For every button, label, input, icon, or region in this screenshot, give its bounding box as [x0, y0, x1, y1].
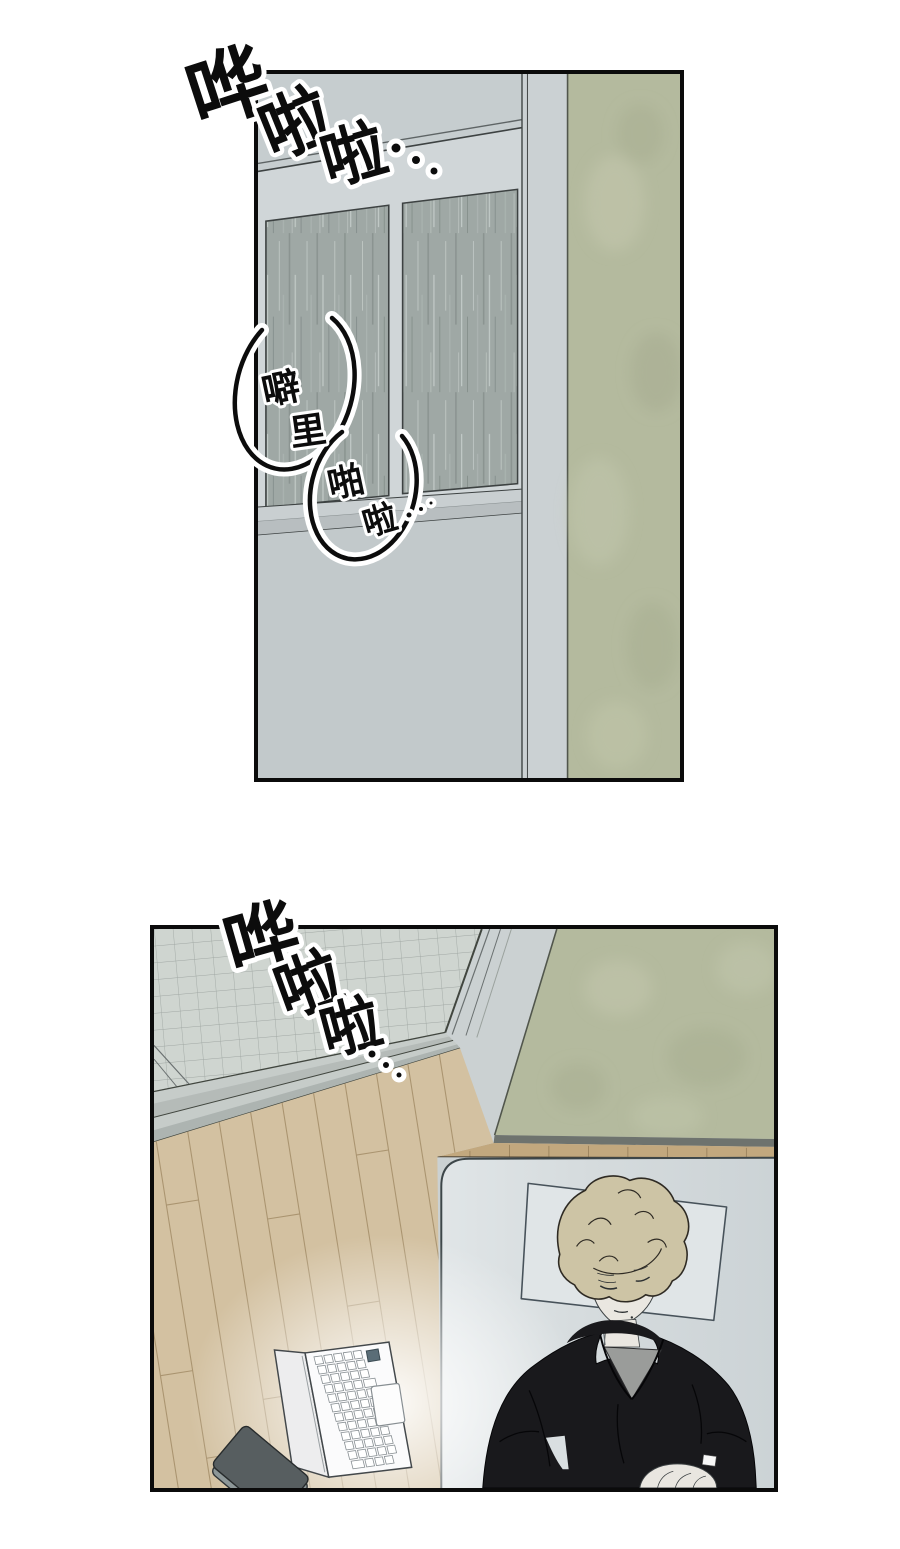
face-mole	[631, 1316, 633, 1318]
laptop	[274, 1342, 411, 1477]
wall-below-window	[258, 514, 522, 778]
sleeve-tag	[702, 1455, 716, 1467]
panel-2-art	[154, 929, 774, 1488]
laptop-power-button	[366, 1349, 380, 1362]
panel-rainy-window	[254, 70, 684, 782]
rain-window-pane-right	[403, 189, 518, 493]
wall-pillar	[522, 74, 568, 778]
panel-bedroom	[150, 925, 778, 1492]
laptop-trackpad	[371, 1383, 405, 1425]
curly-hair	[558, 1176, 689, 1302]
panel-1-art	[258, 74, 680, 778]
rain-window-pane-left	[266, 205, 389, 507]
